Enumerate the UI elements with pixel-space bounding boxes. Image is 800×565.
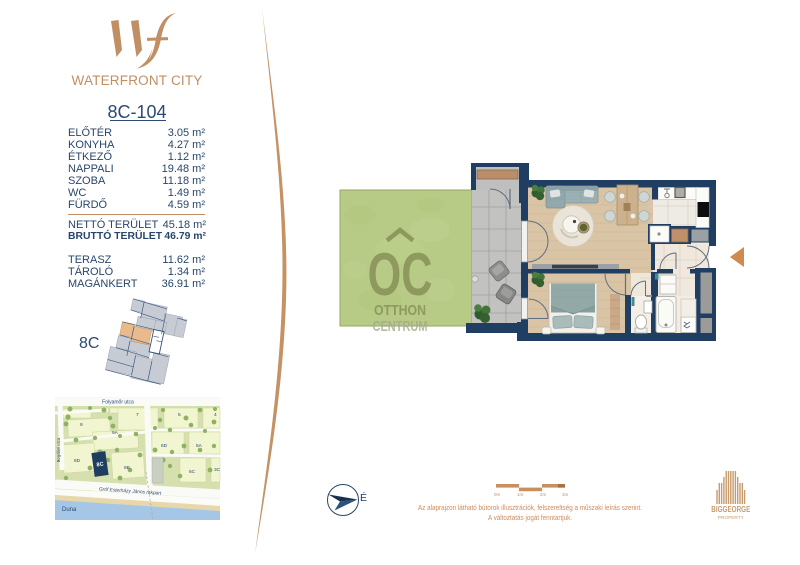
svg-text:OTTHON: OTTHON — [374, 302, 426, 319]
svg-text:Bogdáni utca: Bogdáni utca — [56, 437, 61, 462]
svg-text:5A: 5A — [196, 443, 203, 449]
svg-text:9: 9 — [80, 422, 83, 428]
svg-text:OC: OC — [368, 242, 433, 309]
svg-text:CENTRUM: CENTRUM — [373, 318, 428, 335]
svg-text:BIGGEORGE: BIGGEORGE — [711, 505, 751, 514]
svg-text:Az alaprajzon látható bútorok: Az alaprajzon látható bútorok illusztrác… — [418, 503, 642, 512]
svg-text:7: 7 — [136, 412, 139, 418]
svg-text:Folyamőr utca: Folyamőr utca — [102, 400, 134, 406]
svg-text:0m: 0m — [494, 492, 501, 497]
svg-text:PROPERTY: PROPERTY — [718, 515, 744, 520]
svg-text:8B: 8B — [124, 465, 130, 471]
svg-text:8C: 8C — [96, 462, 104, 469]
svg-text:9A: 9A — [112, 430, 119, 436]
svg-text:5: 5 — [178, 412, 181, 418]
svg-text:4: 4 — [214, 412, 217, 418]
svg-text:8D: 8D — [74, 458, 81, 464]
svg-text:A változtatás jogát fenntartju: A változtatás jogát fenntartjuk. — [488, 513, 572, 522]
svg-text:Duna: Duna — [62, 507, 77, 513]
svg-text:3C: 3C — [214, 467, 221, 473]
svg-text:2m: 2m — [540, 492, 547, 497]
svg-text:3m: 3m — [562, 492, 569, 497]
svg-text:6D: 6D — [161, 443, 168, 449]
svg-text:6C: 6C — [189, 469, 196, 475]
svg-text:É: É — [360, 491, 367, 504]
svg-text:1m: 1m — [517, 492, 524, 497]
